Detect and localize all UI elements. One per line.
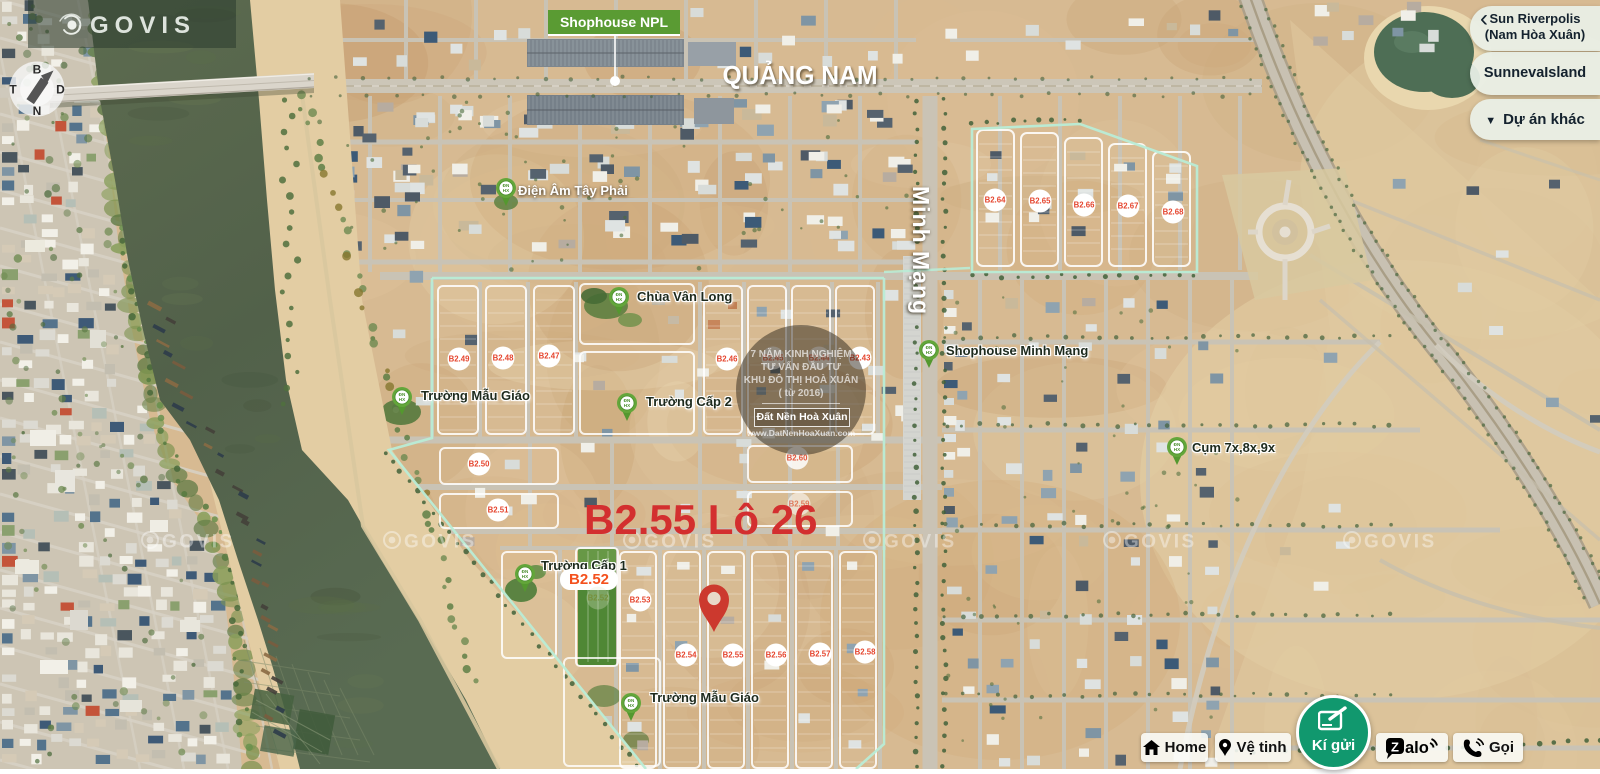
svg-text:HX: HX (616, 297, 623, 302)
svg-text:GOVIS: GOVIS (1364, 532, 1437, 553)
svg-text:N: N (33, 104, 42, 118)
svg-text:D: D (56, 83, 65, 97)
svg-text:GOVIS: GOVIS (90, 12, 196, 39)
svg-text:T: T (9, 83, 17, 97)
svg-text:alo: alo (1405, 739, 1429, 757)
svg-text:HX: HX (1174, 447, 1181, 452)
svg-text:B: B (33, 63, 42, 77)
svg-text:HX: HX (503, 188, 510, 193)
svg-text:HX: HX (628, 703, 635, 708)
svg-text:Z: Z (1391, 739, 1399, 754)
svg-text:HX: HX (624, 403, 631, 408)
svg-text:GOVIS: GOVIS (404, 532, 477, 553)
svg-text:GOVIS: GOVIS (884, 532, 957, 553)
svg-text:HX: HX (926, 350, 933, 355)
svg-text:HX: HX (522, 574, 529, 579)
svg-text:HX: HX (399, 397, 406, 402)
svg-text:GOVIS: GOVIS (1124, 532, 1197, 553)
svg-text:GOVIS: GOVIS (162, 532, 235, 553)
